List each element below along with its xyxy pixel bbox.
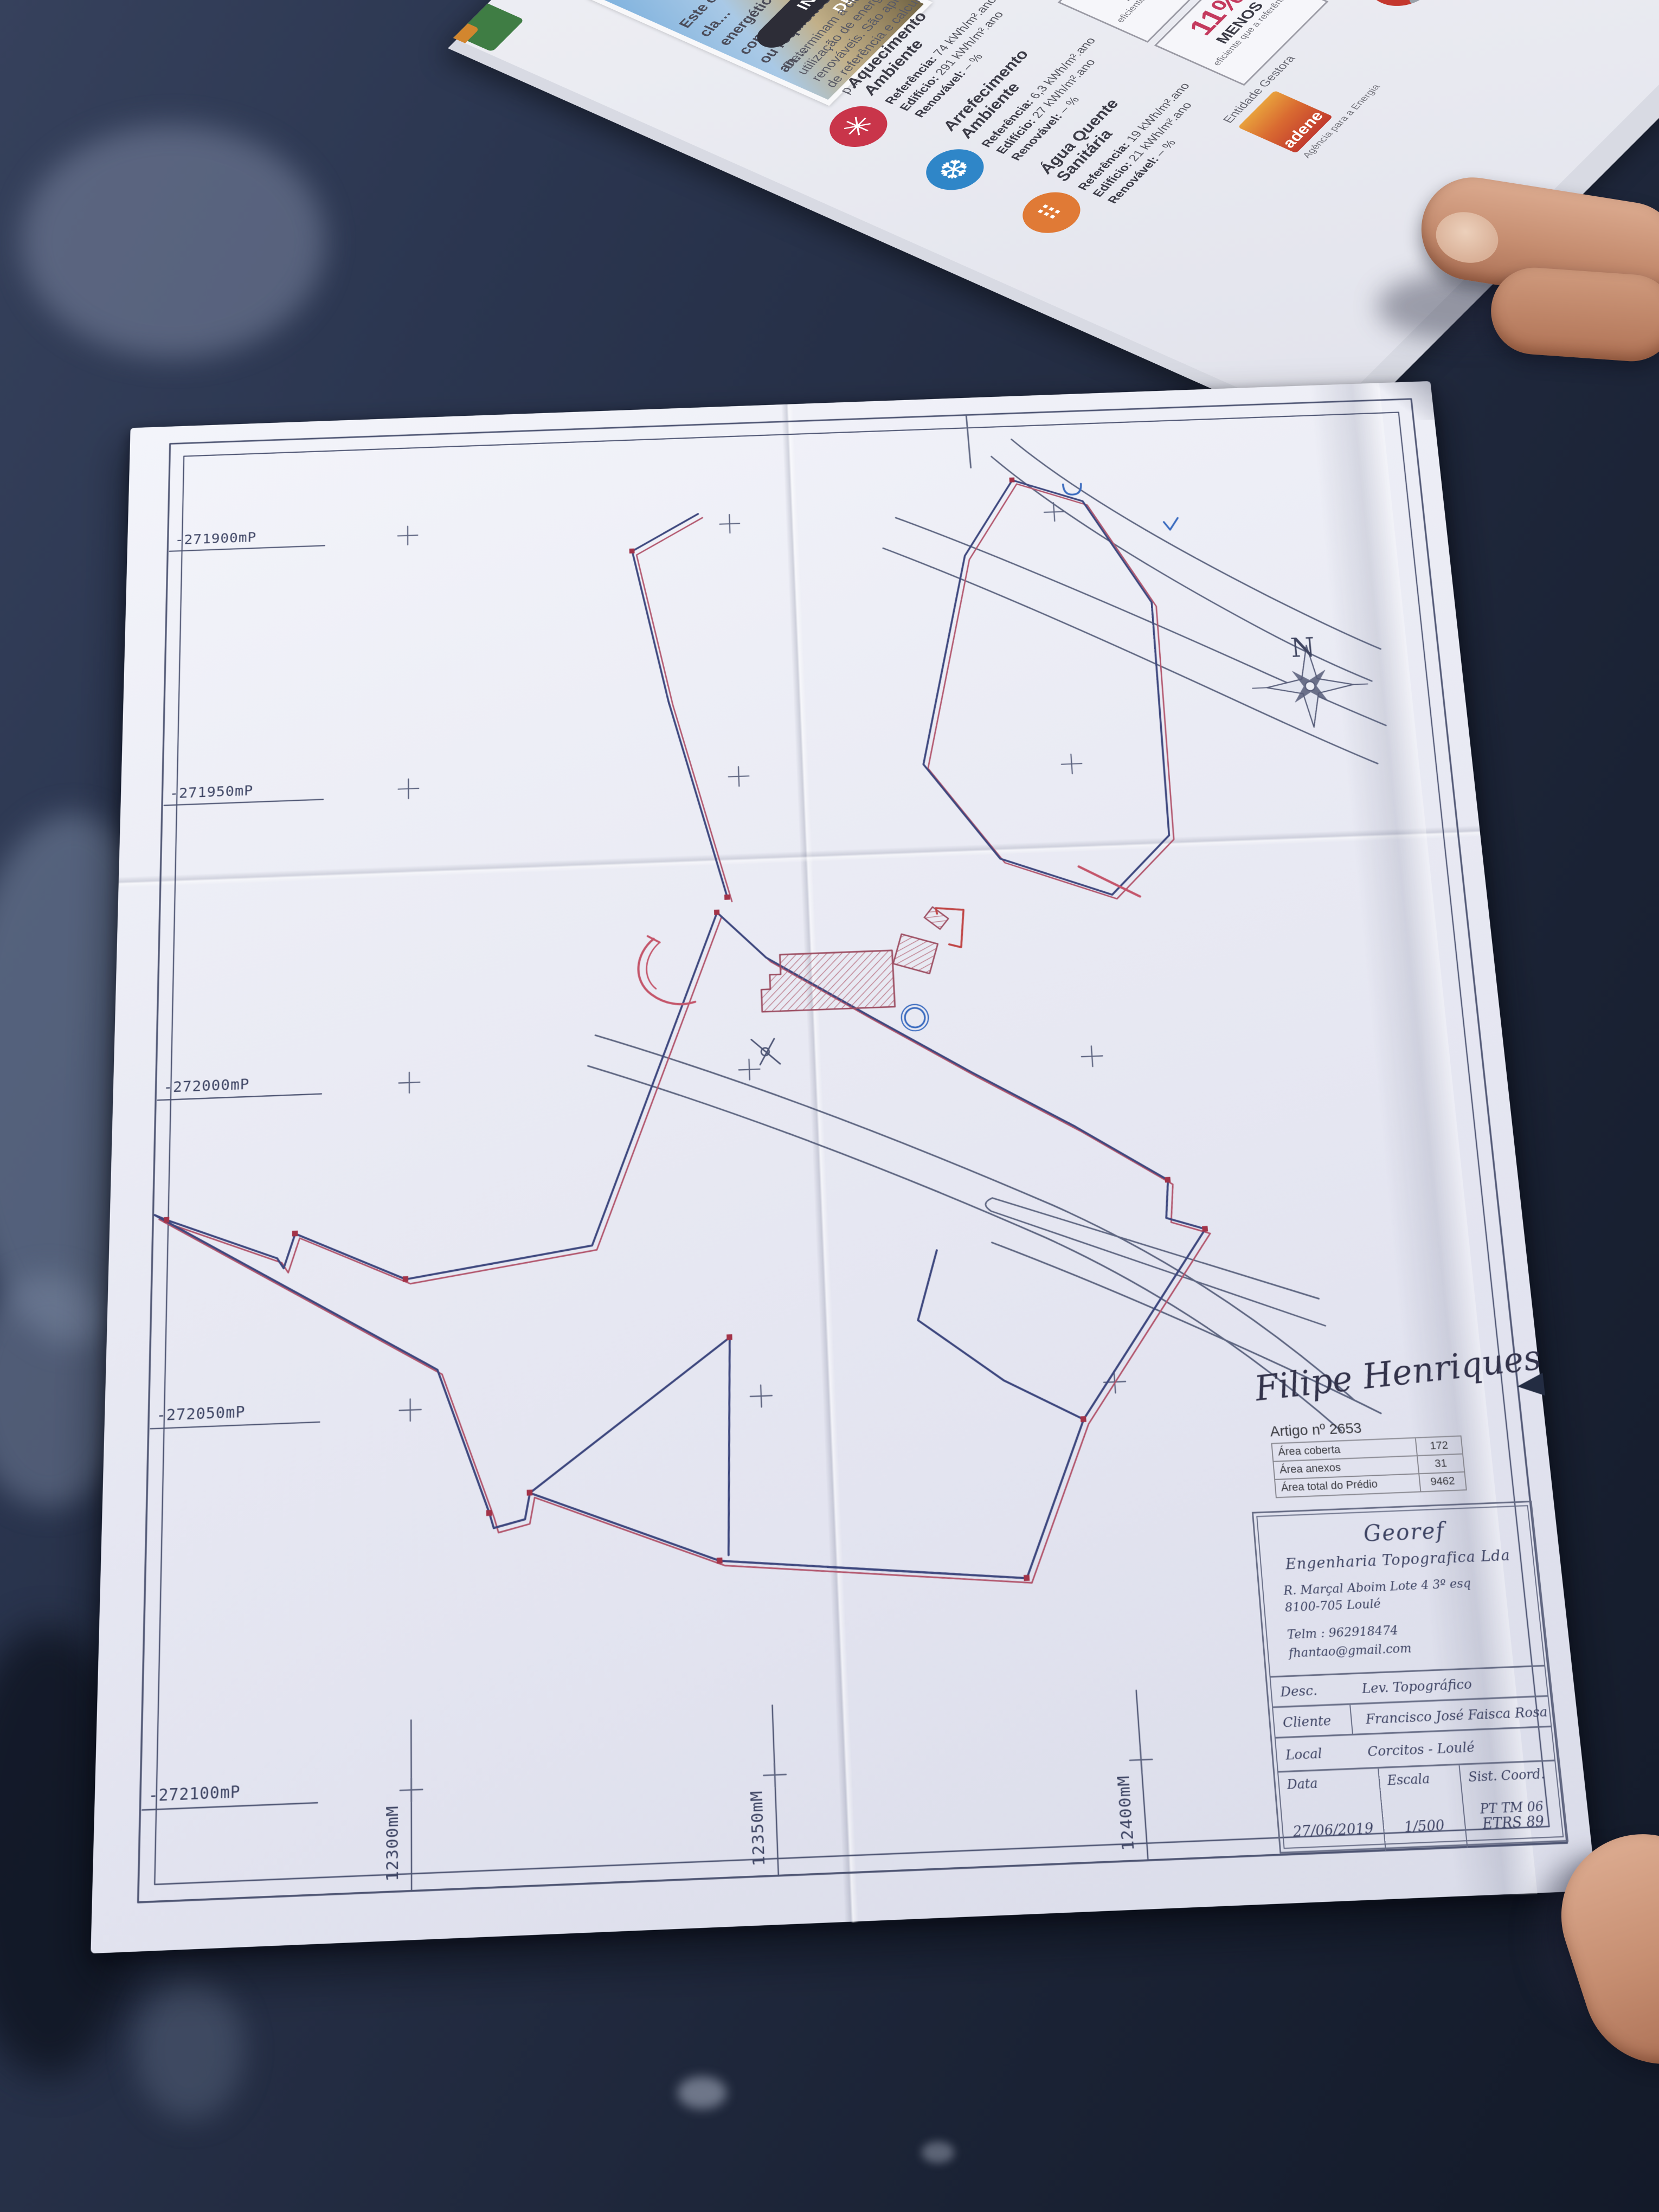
dgeg-logo-block: Entidade Fiscalizadora Direção Geralde E… <box>1338 0 1553 14</box>
building-hatched-main <box>760 950 895 1012</box>
artigo-area-table: Artigo nº 2653 Área coberta172 Área anex… <box>1269 1415 1473 1498</box>
coord-system-cell: Sist. Coord. PT TM 06 ETRS 89 <box>1459 1761 1563 1848</box>
hot-water-icon: ⠿ <box>1011 185 1092 240</box>
pole-symbol <box>751 1038 780 1065</box>
company-contact: Telm : 962918474 fhantao@gmail.com <box>1287 1616 1543 1663</box>
title-block: Georef Engenharia Topografica Lda R. Mar… <box>1252 1501 1568 1854</box>
dgeg-logo <box>1356 0 1447 14</box>
company-box: Georef Engenharia Topografica Lda R. Mar… <box>1257 1506 1544 1677</box>
table-stain <box>136 1979 244 2120</box>
coord-label-bottom: 12300mM <box>383 1729 402 1882</box>
north-label: N <box>1289 632 1316 663</box>
parcel-boundary <box>146 475 1232 1614</box>
date-cell: Data 27/06/2019 <box>1278 1769 1386 1856</box>
coord-label-left: -271950mP <box>170 782 254 802</box>
cooling-fan-icon: ❆ <box>915 142 995 197</box>
photo-scene: Este certificado apresenta a cla… energé… <box>0 0 1659 2212</box>
vertex-markers <box>156 473 1236 1616</box>
building-hatched-annex <box>893 934 938 974</box>
survey-paper: -271900mP -271950mP -272000mP -272050mP … <box>91 381 1597 1953</box>
coord-label-left: -271900mP <box>175 530 257 548</box>
coord-label-left: -272000mP <box>163 1076 249 1097</box>
company-name: Georef <box>1278 1514 1531 1550</box>
coord-label-left: -272100mP <box>148 1783 240 1806</box>
table-stain <box>678 2076 726 2109</box>
well-circle <box>901 1004 929 1031</box>
coord-label-left: -272050mP <box>156 1403 246 1425</box>
scale-cell: Escala 1/500 <box>1379 1765 1468 1851</box>
hand-finger-top <box>1488 265 1659 364</box>
road-lines <box>575 402 1460 1461</box>
company-address: R. Marçal Aboim Lote 4 3º esq 8100-705 L… <box>1283 1573 1538 1617</box>
table-stain <box>922 2142 954 2163</box>
heating-fan-icon: ✳ <box>818 99 899 154</box>
adene-subtitle: Agência para a Energia <box>1300 40 1425 160</box>
meta-row: Data 27/06/2019 Escala 1/500 Sist. Coord… <box>1278 1761 1564 1856</box>
table-stain <box>22 125 325 358</box>
grid-cross-marks <box>398 503 1153 1803</box>
company-subtitle: Engenharia Topografica Lda <box>1285 1545 1533 1573</box>
blue-survey-glyphs <box>1063 480 1179 533</box>
